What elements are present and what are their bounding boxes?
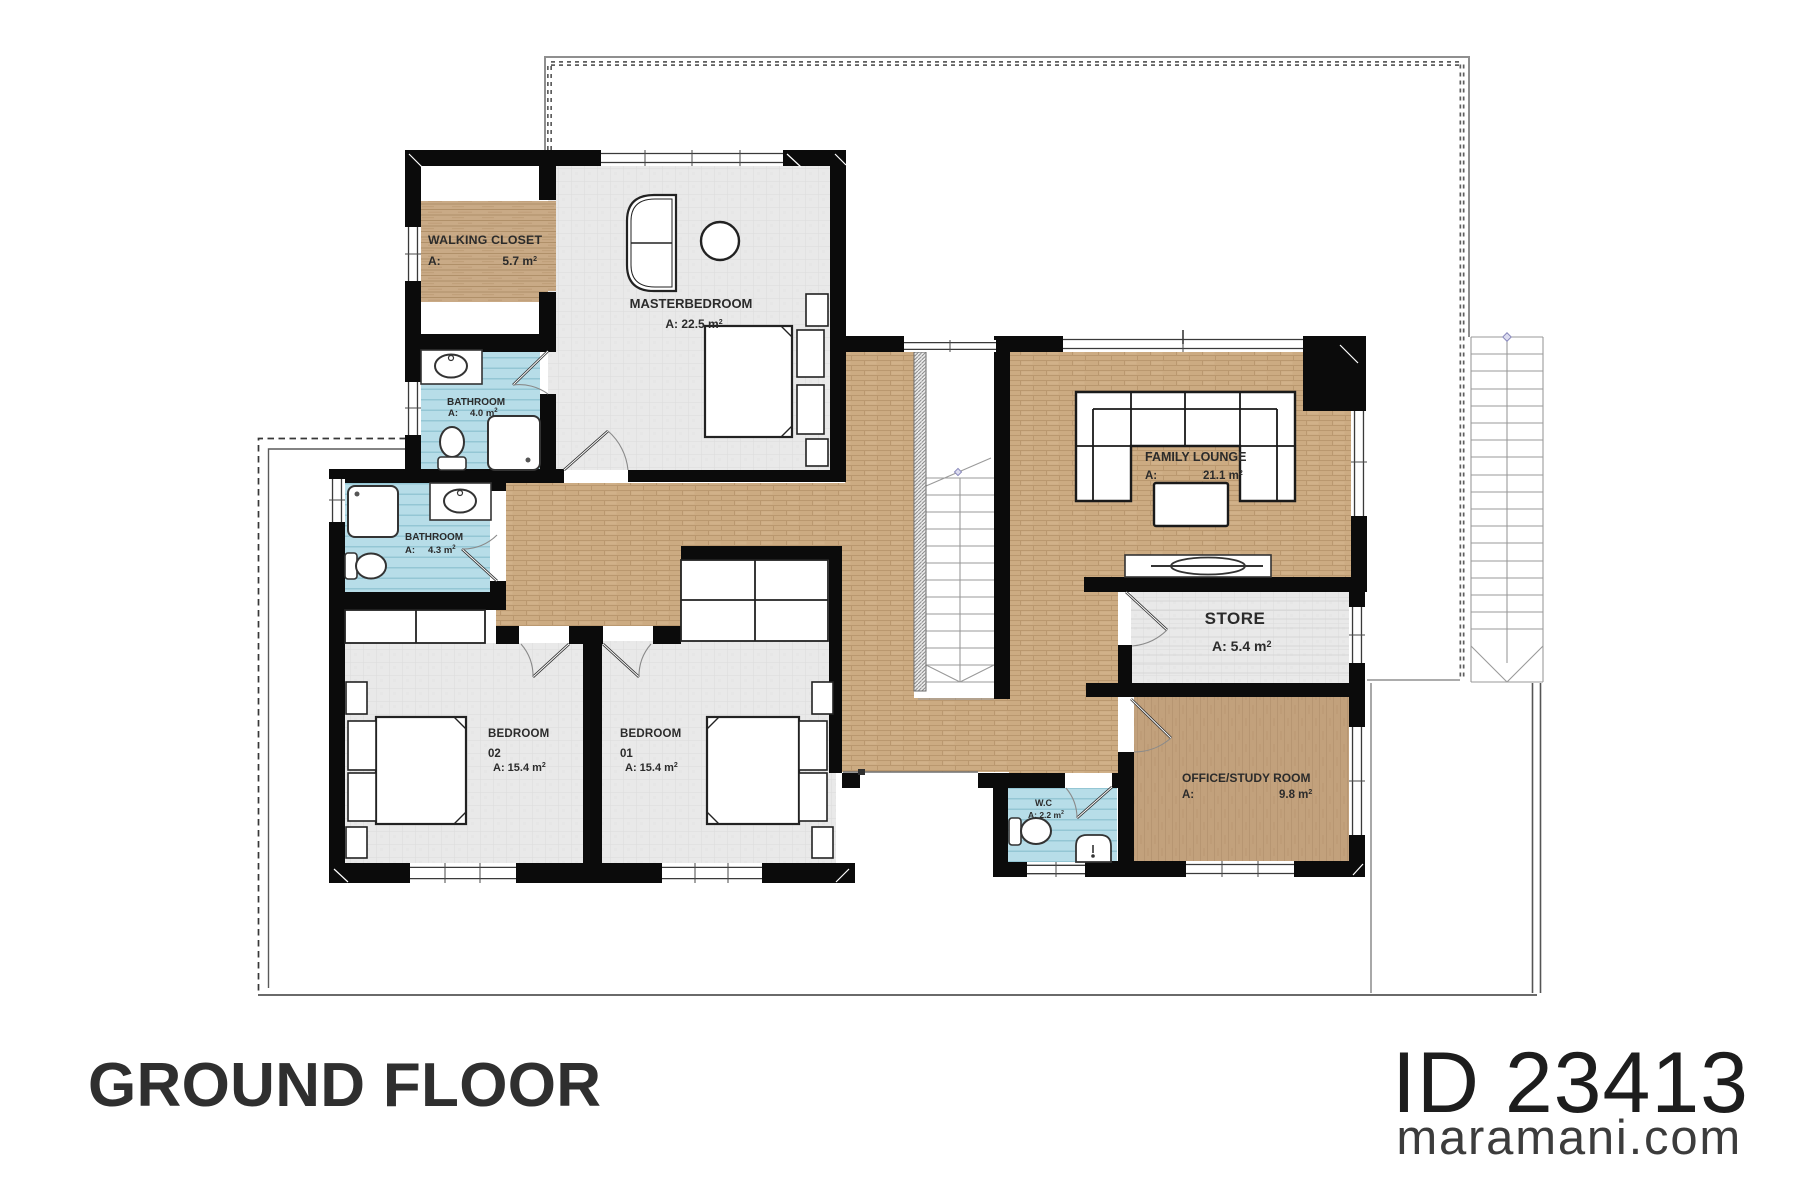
svg-text:A: 15.4 m2: A: 15.4 m2 — [625, 762, 678, 774]
svg-text:A: 22.5 m2: A: 22.5 m2 — [665, 317, 722, 331]
svg-text:A:: A: — [1182, 789, 1194, 801]
svg-text:FAMILY LOUNGE: FAMILY LOUNGE — [1145, 450, 1246, 464]
svg-text:BEDROOM: BEDROOM — [620, 728, 681, 740]
svg-text:02: 02 — [488, 748, 501, 760]
svg-text:A:: A: — [448, 408, 458, 419]
svg-text:21.1 m2: 21.1 m2 — [1203, 470, 1243, 482]
svg-text:maramani.com: maramani.com — [1396, 1111, 1742, 1165]
svg-text:A:: A: — [405, 545, 415, 556]
svg-text:A: 15.4 m2: A: 15.4 m2 — [493, 762, 546, 774]
svg-text:BATHROOM: BATHROOM — [447, 397, 505, 408]
svg-text:W.C: W.C — [1035, 798, 1052, 808]
svg-text:A: 2.2 m2: A: 2.2 m2 — [1028, 810, 1064, 820]
svg-text:BATHROOM: BATHROOM — [405, 532, 463, 543]
svg-text:A:: A: — [1145, 470, 1157, 482]
svg-text:A:: A: — [428, 254, 441, 268]
svg-text:GROUND FLOOR: GROUND FLOOR — [88, 1051, 601, 1120]
svg-text:WALKING CLOSET: WALKING CLOSET — [428, 233, 542, 247]
svg-text:MASTERBEDROOM: MASTERBEDROOM — [630, 296, 753, 311]
svg-text:4.3 m2: 4.3 m2 — [428, 545, 456, 556]
svg-text:STORE: STORE — [1205, 609, 1266, 628]
svg-text:9.8 m2: 9.8 m2 — [1279, 789, 1312, 801]
svg-text:4.0 m2: 4.0 m2 — [470, 408, 498, 419]
svg-text:01: 01 — [620, 748, 633, 760]
svg-text:OFFICE/STUDY ROOM: OFFICE/STUDY ROOM — [1182, 771, 1310, 785]
svg-text:A: 5.4 m2: A: 5.4 m2 — [1212, 638, 1271, 654]
svg-text:5.7 m2: 5.7 m2 — [502, 254, 537, 268]
svg-text:BEDROOM: BEDROOM — [488, 728, 549, 740]
